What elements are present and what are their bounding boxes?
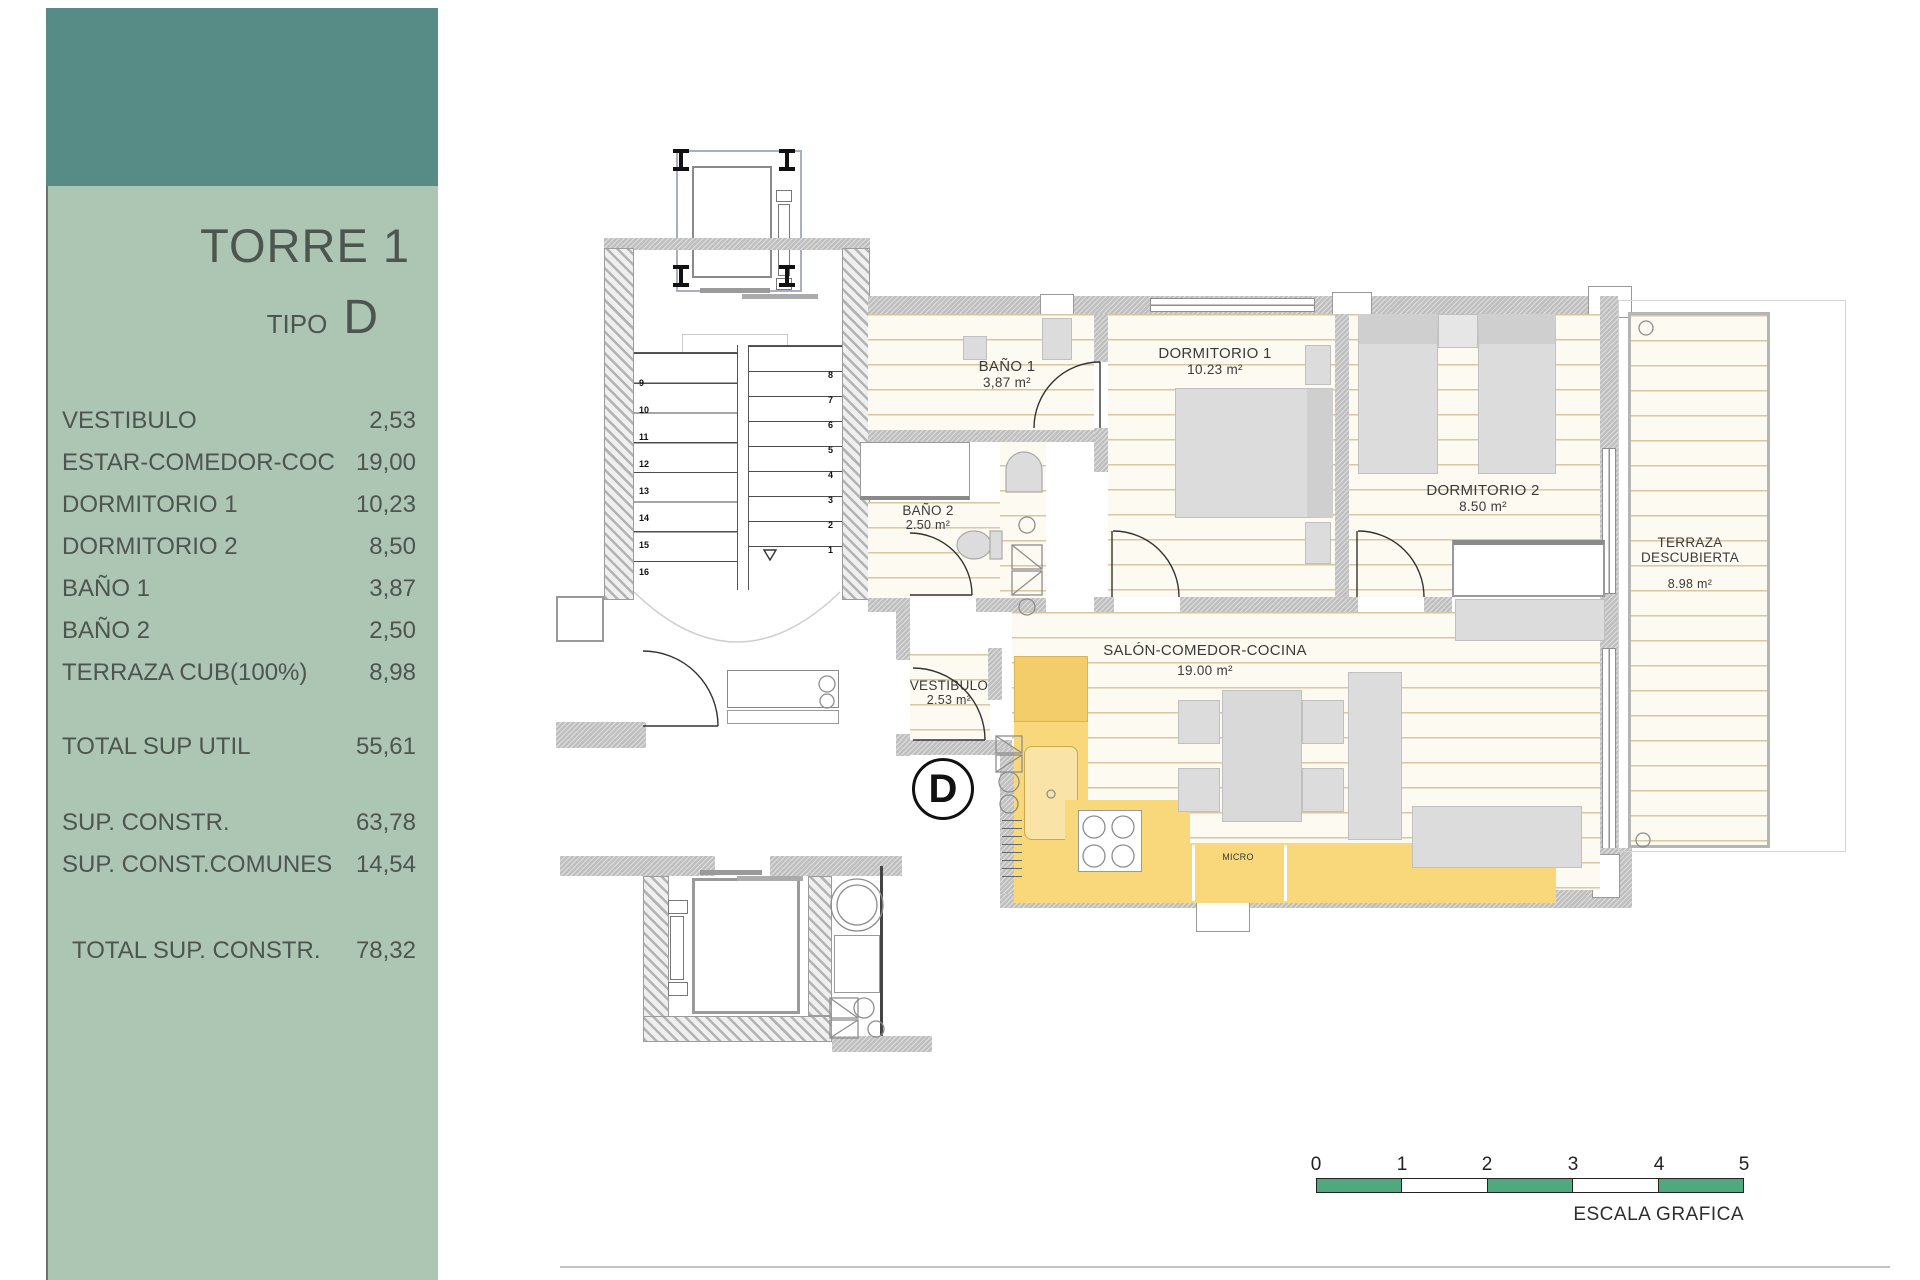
stair-top-wall [604, 238, 870, 250]
kitchen-stove [1078, 810, 1142, 872]
sofa [1348, 672, 1402, 840]
stair-step-number: 12 [639, 459, 649, 469]
hall-cabinet-shelf [727, 710, 839, 724]
stair-step-number: 8 [828, 370, 833, 380]
stair-step-number: 7 [828, 395, 833, 405]
installation-ladder [1002, 820, 1022, 878]
row-value: 2,50 [369, 617, 416, 645]
unit-letter-badge: D [912, 758, 974, 820]
scale-tick: 1 [1390, 1154, 1414, 1176]
window-bay-bench [1455, 599, 1605, 641]
top-wall-pillar [1040, 294, 1074, 316]
row-label: VESTIBULO [62, 407, 197, 435]
scale-segment [1488, 1179, 1573, 1192]
scale-tick: 5 [1732, 1154, 1756, 1176]
hall-bottom-wall [556, 722, 646, 748]
stair-stringer [737, 345, 749, 590]
row-value: 19,00 [356, 449, 416, 477]
sofa [1412, 806, 1582, 868]
room-label-vestibulo: VESTIBULO 2.53 m² [910, 678, 988, 707]
machine-door-sill [700, 870, 762, 875]
row-value: 3,87 [369, 575, 416, 603]
row-value: 63,78 [356, 809, 416, 837]
graphic-scale-bar [1316, 1178, 1744, 1193]
machine-wall-bottom [643, 1016, 832, 1042]
elevator-door-sill [742, 294, 818, 299]
machine-right-wall-line [880, 866, 883, 1040]
scale-segment [1573, 1179, 1658, 1192]
machine-rail [670, 916, 684, 980]
stair-step-number: 11 [639, 432, 649, 442]
sheet-footer-line [560, 1266, 1890, 1268]
total-constr-row: TOTAL SUP. CONSTR.78,32 [46, 930, 438, 972]
elevator-door-sill [700, 288, 770, 293]
bedrooms-bottom-wall [1424, 597, 1452, 612]
bano1-closet [1042, 318, 1072, 360]
bedrooms-bottom-wall [1180, 597, 1358, 612]
tower-title: TORRE 1 [46, 218, 438, 273]
row-value: 8,98 [369, 659, 416, 687]
dormitorio1-window [1150, 298, 1315, 312]
stair-step-number: 5 [828, 445, 833, 455]
dormitorio2-window-bay [1452, 540, 1605, 597]
row-value: 2,53 [369, 407, 416, 435]
stair-step-number: 4 [828, 470, 833, 480]
stair-step-number: 10 [639, 405, 649, 415]
scale-tick: 3 [1561, 1154, 1585, 1176]
nightstand [1305, 522, 1331, 564]
room-label-salon: SALÓN-COMEDOR-COCINA 19.00 m² [1103, 642, 1307, 678]
elevator-rail [776, 190, 792, 202]
tipo-value: D [343, 290, 378, 345]
machine-top-wall [560, 856, 715, 876]
stair-step-number: 15 [639, 540, 649, 550]
hall-cabinet [727, 670, 839, 708]
room-label-bano1: BAÑO 1 3,87 m² [979, 358, 1036, 390]
row-label: TOTAL SUP. CONSTR. [72, 937, 321, 965]
scale-segment [1402, 1179, 1487, 1192]
stair-step-number: 9 [639, 378, 644, 388]
row-label: TOTAL SUP UTIL [62, 733, 251, 761]
dining-table [1222, 690, 1302, 822]
scale-segment [1317, 1179, 1402, 1192]
dining-chair [1178, 768, 1220, 812]
hall-side-box [556, 596, 604, 642]
dining-chair [1302, 700, 1344, 744]
bedroom-divider-wall [1335, 314, 1349, 597]
scale-tick: 2 [1475, 1154, 1499, 1176]
kitchen-fridge [1014, 656, 1088, 722]
row-label: ESTAR-COMEDOR-COC [62, 449, 335, 477]
table-row: DORMITORIO 110,23 [46, 484, 438, 526]
machine-bottom-bar [832, 1036, 932, 1052]
counter-divider [1284, 845, 1287, 901]
stair-step-number: 16 [639, 567, 649, 577]
vestibulo-right-wall [988, 648, 1002, 700]
scale-tick: 0 [1304, 1154, 1328, 1176]
area-table: VESTIBULO2,53 ESTAR-COMEDOR-COC19,00 DOR… [46, 400, 438, 972]
ibeam-column-icon [779, 265, 795, 287]
row-value: 10,23 [356, 491, 416, 519]
closet [860, 442, 970, 500]
bedrooms-bottom-wall [1094, 597, 1114, 612]
sup-comunes-row: SUP. CONST.COMUNES14,54 [46, 844, 438, 886]
bano1-right-wall [1094, 314, 1108, 362]
machine-door-sill [737, 876, 803, 881]
tipo-label: TIPO [267, 309, 328, 340]
row-value: 8,50 [369, 533, 416, 561]
dormitorio2-bed [1478, 314, 1556, 474]
table-row: DORMITORIO 28,50 [46, 526, 438, 568]
stair-step-number: 6 [828, 420, 833, 430]
stair-step-number: 1 [828, 545, 833, 555]
ibeam-column-icon [779, 149, 795, 171]
tipo-line: TIPO D [46, 290, 438, 345]
row-label: DORMITORIO 1 [62, 491, 238, 519]
total-util-row: TOTAL SUP UTIL55,61 [46, 726, 438, 768]
machine-wall-right [808, 876, 832, 1016]
dining-chair [1302, 768, 1344, 812]
floorplan-sheet: { "sidebar": { "title": "TORRE 1", "tipo… [0, 0, 1920, 1280]
scale-tick: 4 [1647, 1154, 1671, 1176]
sidebar-header-block [46, 8, 438, 186]
row-value: 55,61 [356, 733, 416, 761]
laundry-box [834, 935, 880, 993]
scale-segment [1659, 1179, 1743, 1192]
nightstand [1438, 314, 1478, 348]
stair-flight-left [634, 352, 737, 590]
table-row: BAÑO 13,87 [46, 568, 438, 610]
nightstand [1305, 345, 1331, 385]
bano2-bottom-wall [868, 598, 906, 612]
stair-wall-left [604, 248, 634, 600]
stair-wall-right [842, 248, 870, 600]
stair-step-number: 3 [828, 495, 833, 505]
shower-column-floor [1000, 440, 1046, 598]
dormitorio1-bed [1175, 388, 1333, 518]
row-label: DORMITORIO 2 [62, 533, 238, 561]
row-value: 14,54 [356, 851, 416, 879]
elevator-cab [692, 166, 772, 278]
room-label-bano2: BAÑO 2 2.50 m² [902, 503, 953, 532]
table-row: ESTAR-COMEDOR-COC19,00 [46, 442, 438, 484]
bano1-bottom-wall [868, 430, 1094, 442]
micro-label: MICRO [1222, 852, 1254, 862]
dormitorio2-bed [1358, 314, 1438, 474]
row-label: SUP. CONST.COMUNES [62, 851, 332, 879]
stair-step-number: 2 [828, 520, 833, 530]
table-row: VESTIBULO2,53 [46, 400, 438, 442]
counter-divider [1192, 845, 1195, 901]
row-label: BAÑO 2 [62, 617, 150, 645]
ibeam-column-icon [673, 149, 689, 171]
stair-step-number: 13 [639, 486, 649, 496]
scale-caption: ESCALA GRAFICA [1528, 1204, 1744, 1226]
ibeam-column-icon [673, 265, 689, 287]
sup-constr-row: SUP. CONSTR.63,78 [46, 802, 438, 844]
unit-letter: D [929, 767, 958, 812]
row-label: SUP. CONSTR. [62, 809, 230, 837]
hall-turning-arc [634, 592, 840, 642]
dining-chair [1178, 700, 1220, 744]
room-label-terraza: TERRAZA DESCUBIERTA 8.98 m² [1641, 535, 1739, 591]
room-label-dormitorio2: DORMITORIO 2 8.50 m² [1426, 482, 1539, 514]
vestibulo-sill-wall [896, 740, 1012, 755]
table-row: BAÑO 22,50 [46, 610, 438, 652]
row-label: BAÑO 1 [62, 575, 150, 603]
row-value: 78,32 [356, 937, 416, 965]
bano1-sink [963, 336, 987, 360]
machine-rail [668, 900, 688, 914]
machine-cab [692, 878, 800, 1014]
salon-terrace-glass-door [1602, 648, 1616, 878]
row-label: TERRAZA CUB(100%) [62, 659, 307, 687]
room-label-dormitorio1: DORMITORIO 1 10.23 m² [1158, 345, 1271, 377]
bano1-right-wall [1094, 428, 1108, 472]
bano2-bottom-wall [976, 598, 1046, 612]
table-row: TERRAZA CUB(100%)8,98 [46, 652, 438, 694]
stair-step-number: 14 [639, 513, 649, 523]
machine-rail [668, 982, 688, 996]
